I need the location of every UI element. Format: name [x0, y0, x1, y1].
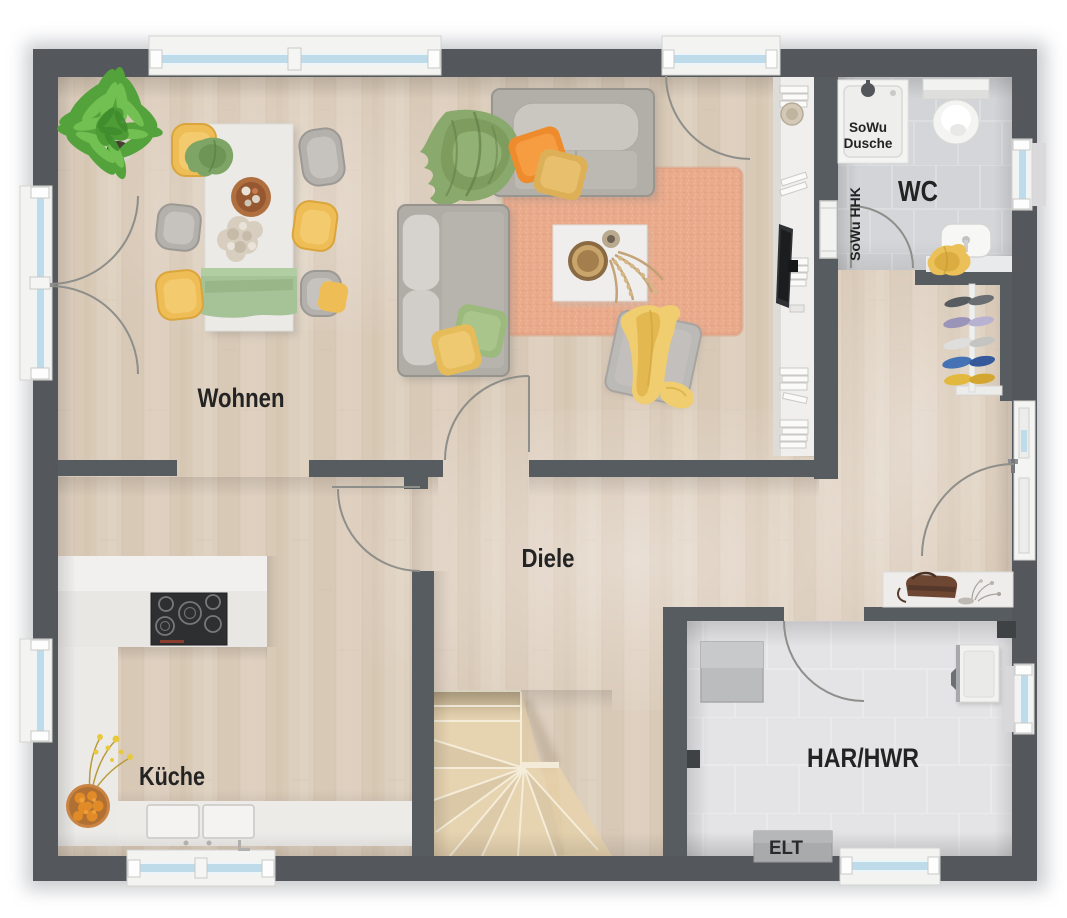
svg-text:Küche: Küche [139, 761, 205, 791]
svg-text:SoWu HHK: SoWu HHK [847, 187, 863, 261]
svg-text:Wohnen: Wohnen [198, 383, 285, 413]
svg-text:Diele: Diele [522, 543, 575, 573]
svg-text:Dusche: Dusche [844, 136, 893, 151]
svg-text:ELT: ELT [769, 838, 803, 859]
svg-text:HAR/HWR: HAR/HWR [807, 743, 919, 773]
svg-text:WC: WC [898, 176, 938, 208]
svg-text:SoWu: SoWu [849, 120, 887, 135]
